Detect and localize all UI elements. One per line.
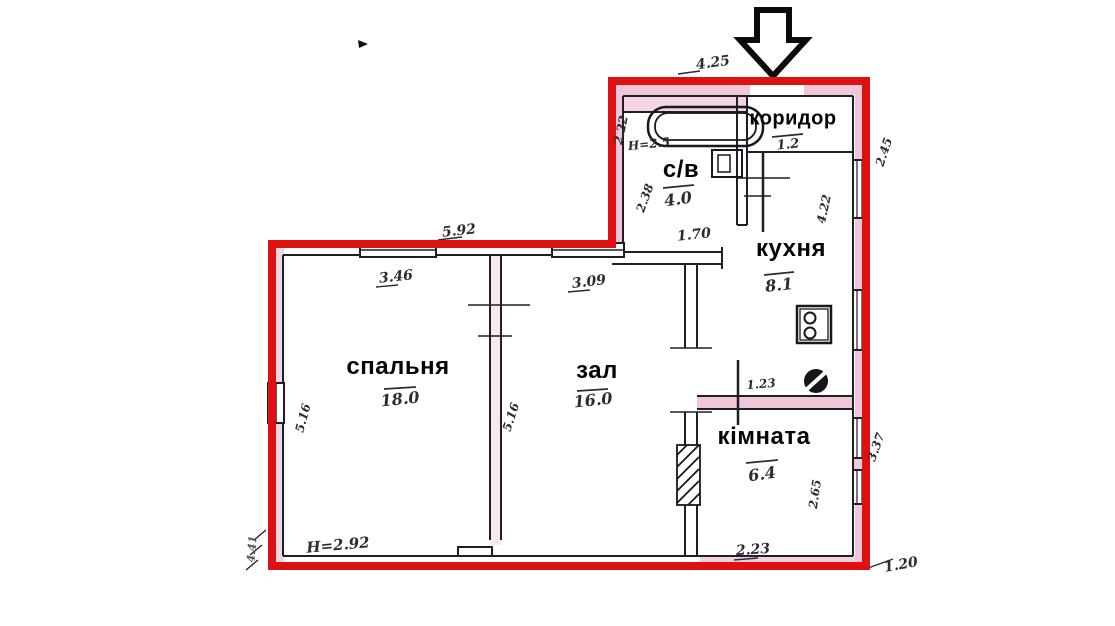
room-label-kitchen: кухня (756, 235, 826, 263)
room-area-bedroom: 18.0 (380, 388, 421, 411)
dim-kitchen-wall-width: 1.23 (746, 376, 776, 392)
sink-icon (804, 369, 828, 393)
room-area-kitchen: 8.1 (764, 274, 794, 296)
room-label-corridor: коридор (749, 108, 836, 131)
room-area-room: 6.4 (747, 463, 777, 486)
room-label-bedroom: спальня (346, 353, 449, 381)
dim-outside-left-mark: 4.41 (244, 535, 259, 563)
room-area-hall: 16.0 (573, 389, 614, 412)
paper-background (0, 0, 1115, 626)
floor-plan: коридор с/в кухня спальня зал кімната 1.… (0, 0, 1115, 626)
room-label-hall: зал (576, 357, 618, 385)
room-area-bathroom: 4.0 (663, 188, 693, 211)
room-area-corridor: 1.2 (776, 136, 800, 153)
duct-shaft-icon (677, 445, 700, 505)
room-label-room: кімната (718, 423, 811, 451)
room-label-bathroom: с/в (663, 156, 699, 184)
dim-room-bottom-width: 2.23 (735, 541, 770, 559)
floor-plan-drawing (0, 0, 1115, 626)
